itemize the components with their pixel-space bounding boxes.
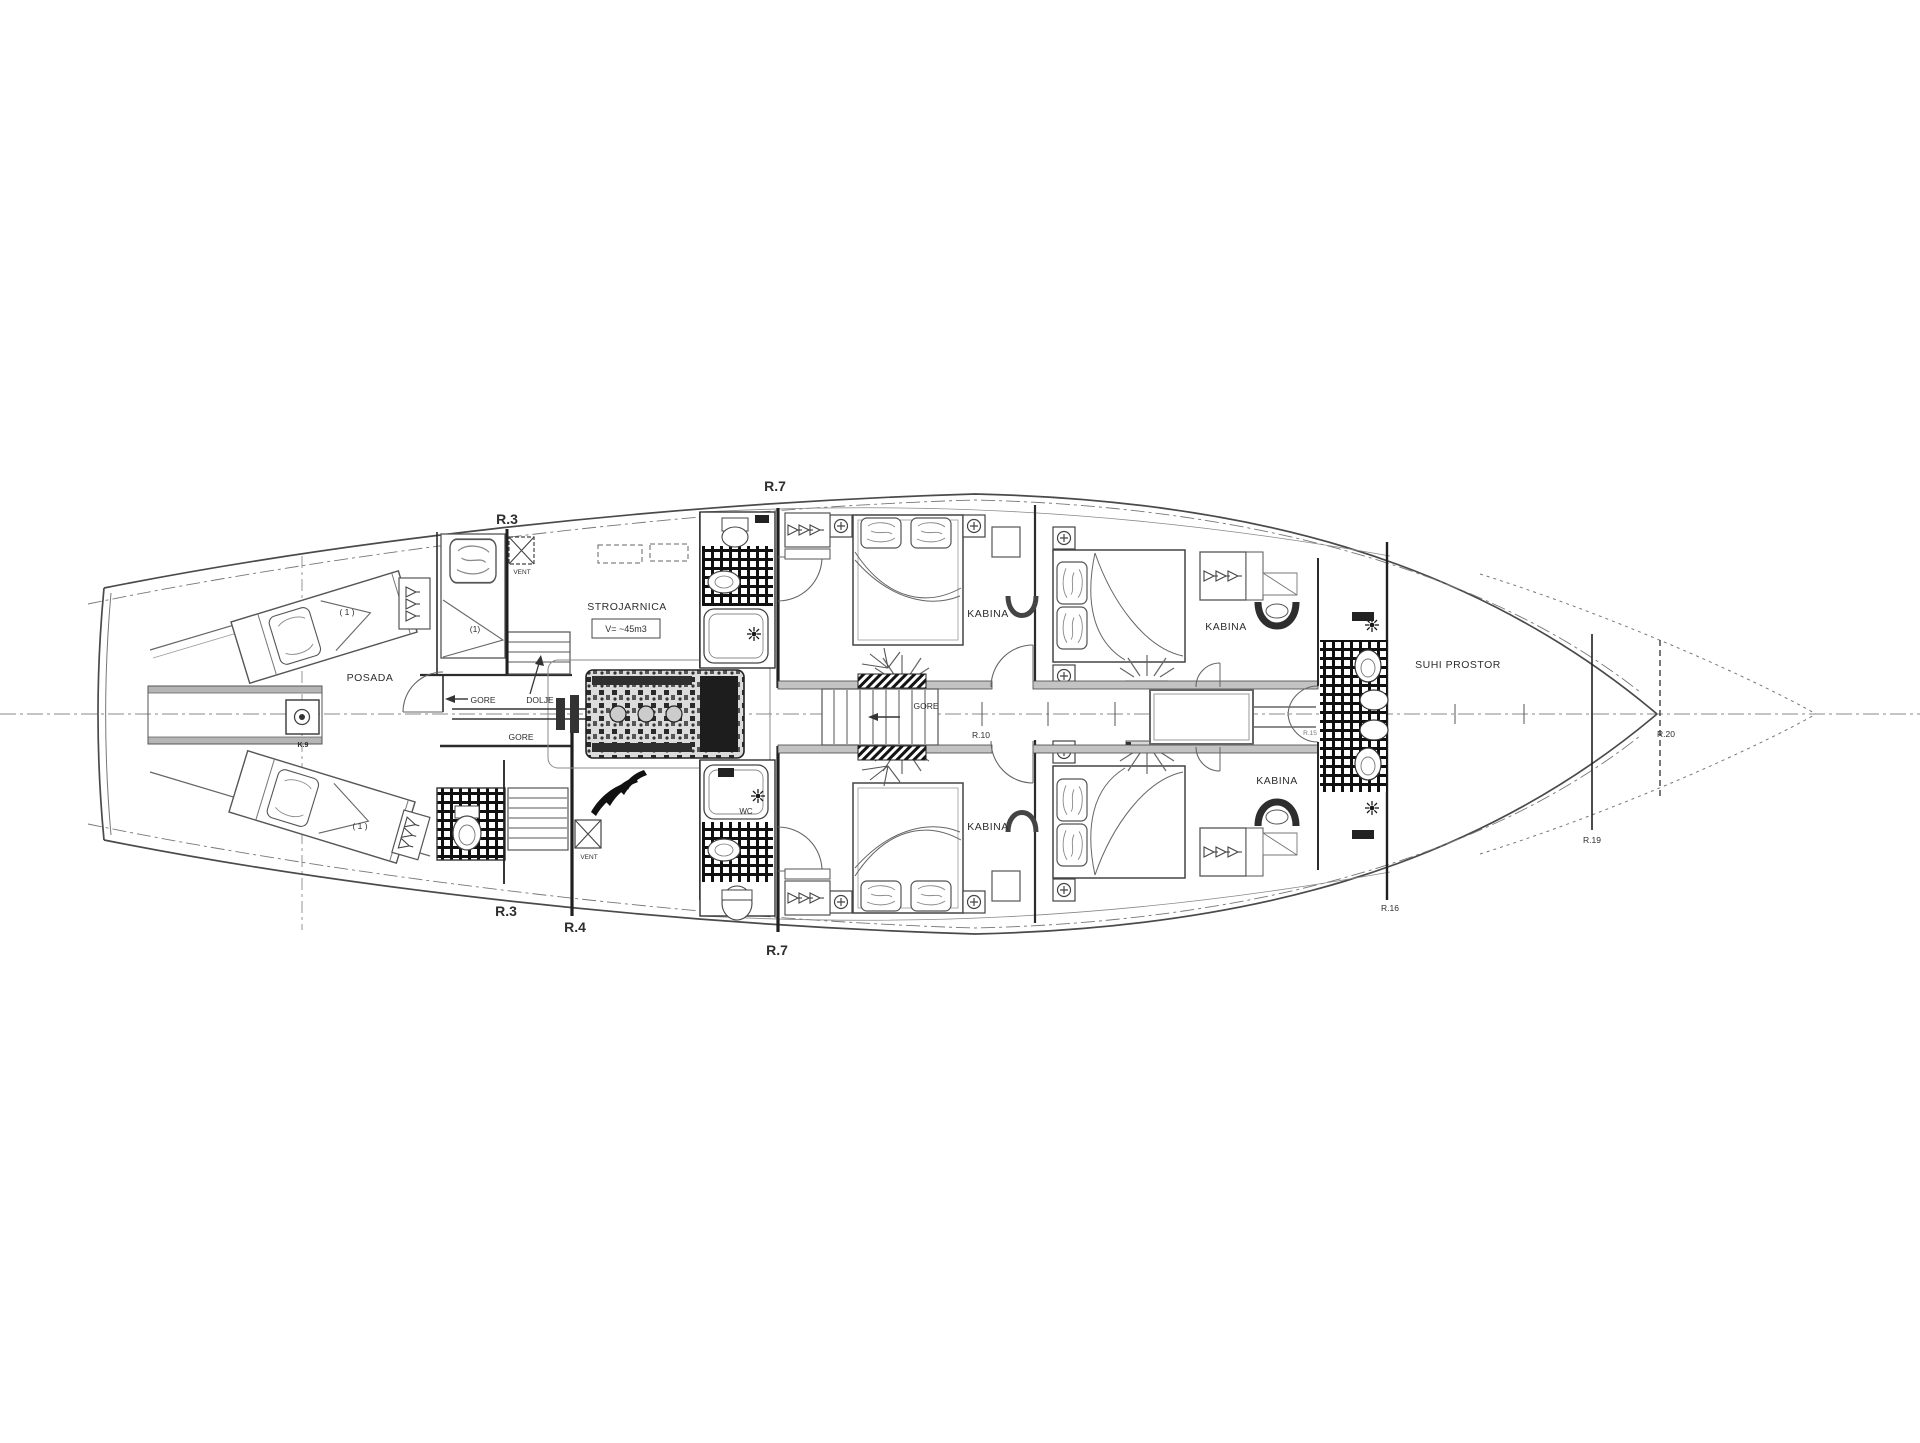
skylight-grate: [858, 674, 926, 688]
pillow: [861, 518, 901, 548]
engine-flywheel-housing: [700, 676, 738, 752]
wardrobe: [785, 869, 830, 915]
label-r20: R.20: [1657, 729, 1675, 739]
ceiling-spot-icon: [1053, 527, 1075, 549]
mast-label: K.9: [298, 742, 309, 749]
volume-label: V= ~45m3: [605, 624, 647, 634]
exhaust-swoosh-icon: [591, 770, 647, 816]
strojarnica-label: STROJARNICA: [587, 601, 667, 613]
nightstand: [992, 527, 1020, 557]
pillow: [911, 518, 951, 548]
faucet-icon: [718, 768, 734, 777]
sink-icon: [708, 839, 740, 861]
label-r3-top: R.3: [496, 511, 518, 527]
label-r10: R.10: [972, 730, 990, 740]
kabina-mid-top-label: KABINA: [967, 608, 1009, 620]
kabina-right-top-label: KABINA: [1205, 621, 1247, 633]
label-r3-bottom: R.3: [495, 903, 517, 919]
vent-box-top: VENT: [509, 537, 534, 576]
aft-single-cabin: (1): [437, 532, 505, 674]
gore-corridor-label: GORE: [913, 701, 938, 711]
label-r7-bottom: R.7: [766, 942, 788, 958]
corridor-wall: [1033, 681, 1318, 689]
dolje-label: DOLJE: [526, 695, 554, 705]
cabin-right-top: KABINA: [1053, 527, 1297, 688]
shower-head-icon: [751, 789, 765, 803]
bow-overhang-top: [1480, 574, 1816, 714]
hanger-locker-top: [399, 578, 430, 629]
label-r7-top: R.7: [764, 478, 786, 494]
door-arc: [778, 827, 822, 871]
door-arc: [1288, 686, 1318, 716]
corridor-wall: [1033, 745, 1318, 753]
berth-count-port-top: ( 1 ): [339, 607, 354, 617]
posada-label: POSADA: [347, 672, 394, 684]
pillow: [1057, 607, 1087, 649]
crew-bathroom: [437, 788, 505, 860]
ceiling-spot-icon: [963, 891, 985, 913]
wc-label: WC: [739, 807, 753, 816]
skylight-grate: [858, 746, 926, 760]
label-r4-bottom: R.4: [564, 919, 586, 935]
crew-berth-port-bottom: [229, 751, 415, 863]
faucet-icon: [1352, 612, 1374, 621]
door-arc: [403, 672, 443, 712]
pillow: [450, 539, 496, 583]
label-r15: R.15: [1303, 730, 1317, 737]
faucet-icon: [1352, 830, 1374, 839]
vent-bottom-label: VENT: [580, 854, 597, 861]
shower-head-icon: [1365, 801, 1379, 815]
ship-general-arrangement-drawing: K.9 POSADA ( 1 ) ( 1 ) (1) GORE GORE: [0, 0, 1920, 1438]
sink-icon: [708, 571, 740, 593]
hatch-opening: [598, 545, 642, 563]
cabin-mid-bottom: KABINA: [785, 740, 1036, 923]
wardrobe: [1200, 828, 1297, 876]
wardrobe: [1200, 552, 1297, 600]
ceiling-spot-icon: [830, 515, 852, 537]
gore-arrow: [445, 695, 455, 703]
nightstand: [992, 871, 1020, 901]
sink-icon: [1360, 690, 1388, 710]
chair: [1008, 596, 1036, 616]
shower-head-icon: [747, 627, 761, 641]
cabin-mid-top: KABINA: [785, 505, 1036, 688]
pillow: [861, 881, 901, 911]
cabin-right-bottom: KABINA: [1053, 741, 1298, 901]
pillow: [1057, 562, 1087, 604]
gore-aft-label: GORE: [470, 695, 495, 705]
corridor-walkway: [1150, 690, 1316, 744]
shaft-coupling: [556, 698, 565, 730]
pillow: [1057, 824, 1087, 866]
wardrobe: [785, 513, 830, 559]
pillow: [911, 881, 951, 911]
sink-icon: [1360, 720, 1388, 740]
door-arc: [991, 645, 1033, 687]
ceiling-spot-icon: [1053, 879, 1075, 901]
kabina-mid-bottom-label: KABINA: [967, 821, 1009, 833]
ceiling-spot-icon: [830, 891, 852, 913]
door-arc: [991, 741, 1033, 783]
berth-count-port-bottom: ( 1 ): [352, 821, 367, 831]
pillow: [1057, 779, 1087, 821]
door-arc: [778, 557, 822, 601]
crew-ladder: [508, 788, 568, 850]
vent-box-bottom: VENT: [575, 820, 601, 861]
vent-top-label: VENT: [513, 569, 530, 576]
shelf: [1263, 573, 1297, 595]
heads-fwd-top: [1318, 558, 1388, 714]
shelf: [1263, 833, 1297, 855]
shower-tray: [704, 609, 768, 663]
suhi-prostor-label: SUHI PROSTOR: [1415, 659, 1501, 671]
crew-berth-port-top: [231, 571, 417, 683]
kabina-right-bottom-label: KABINA: [1256, 775, 1298, 787]
berth-count-aft-top: (1): [470, 624, 481, 634]
label-r19: R.19: [1583, 835, 1601, 845]
label-r16: R.16: [1381, 903, 1399, 913]
gore-lower-label: GORE: [508, 732, 533, 742]
light-rays-icon: [862, 648, 900, 668]
faucet-icon: [755, 515, 769, 523]
forepeak: SUHI PROSTOR: [1415, 659, 1501, 671]
bow-overhang-bottom: [1480, 714, 1816, 854]
chair: [1008, 813, 1036, 833]
ceiling-spot-icon: [963, 515, 985, 537]
engine-room-stairs: DOLJE: [508, 632, 570, 705]
hatch-opening: [650, 544, 688, 561]
toilet-icon: [722, 527, 748, 547]
heads-fwd-bottom: [1318, 714, 1388, 870]
